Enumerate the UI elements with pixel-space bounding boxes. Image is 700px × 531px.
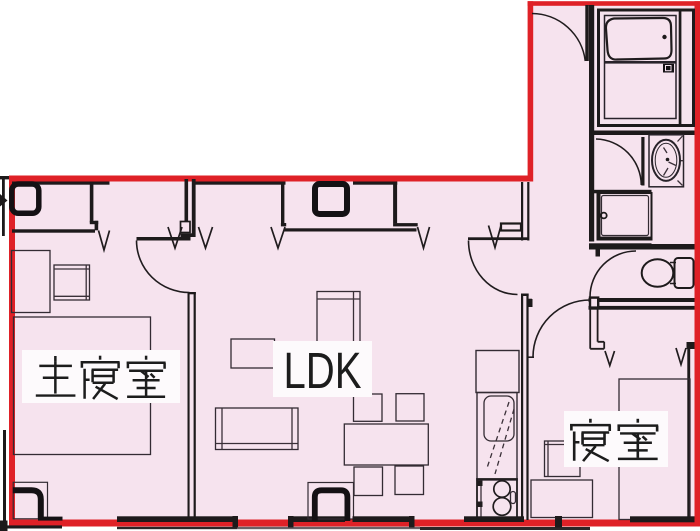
svg-text:LDK: LDK <box>284 342 362 399</box>
